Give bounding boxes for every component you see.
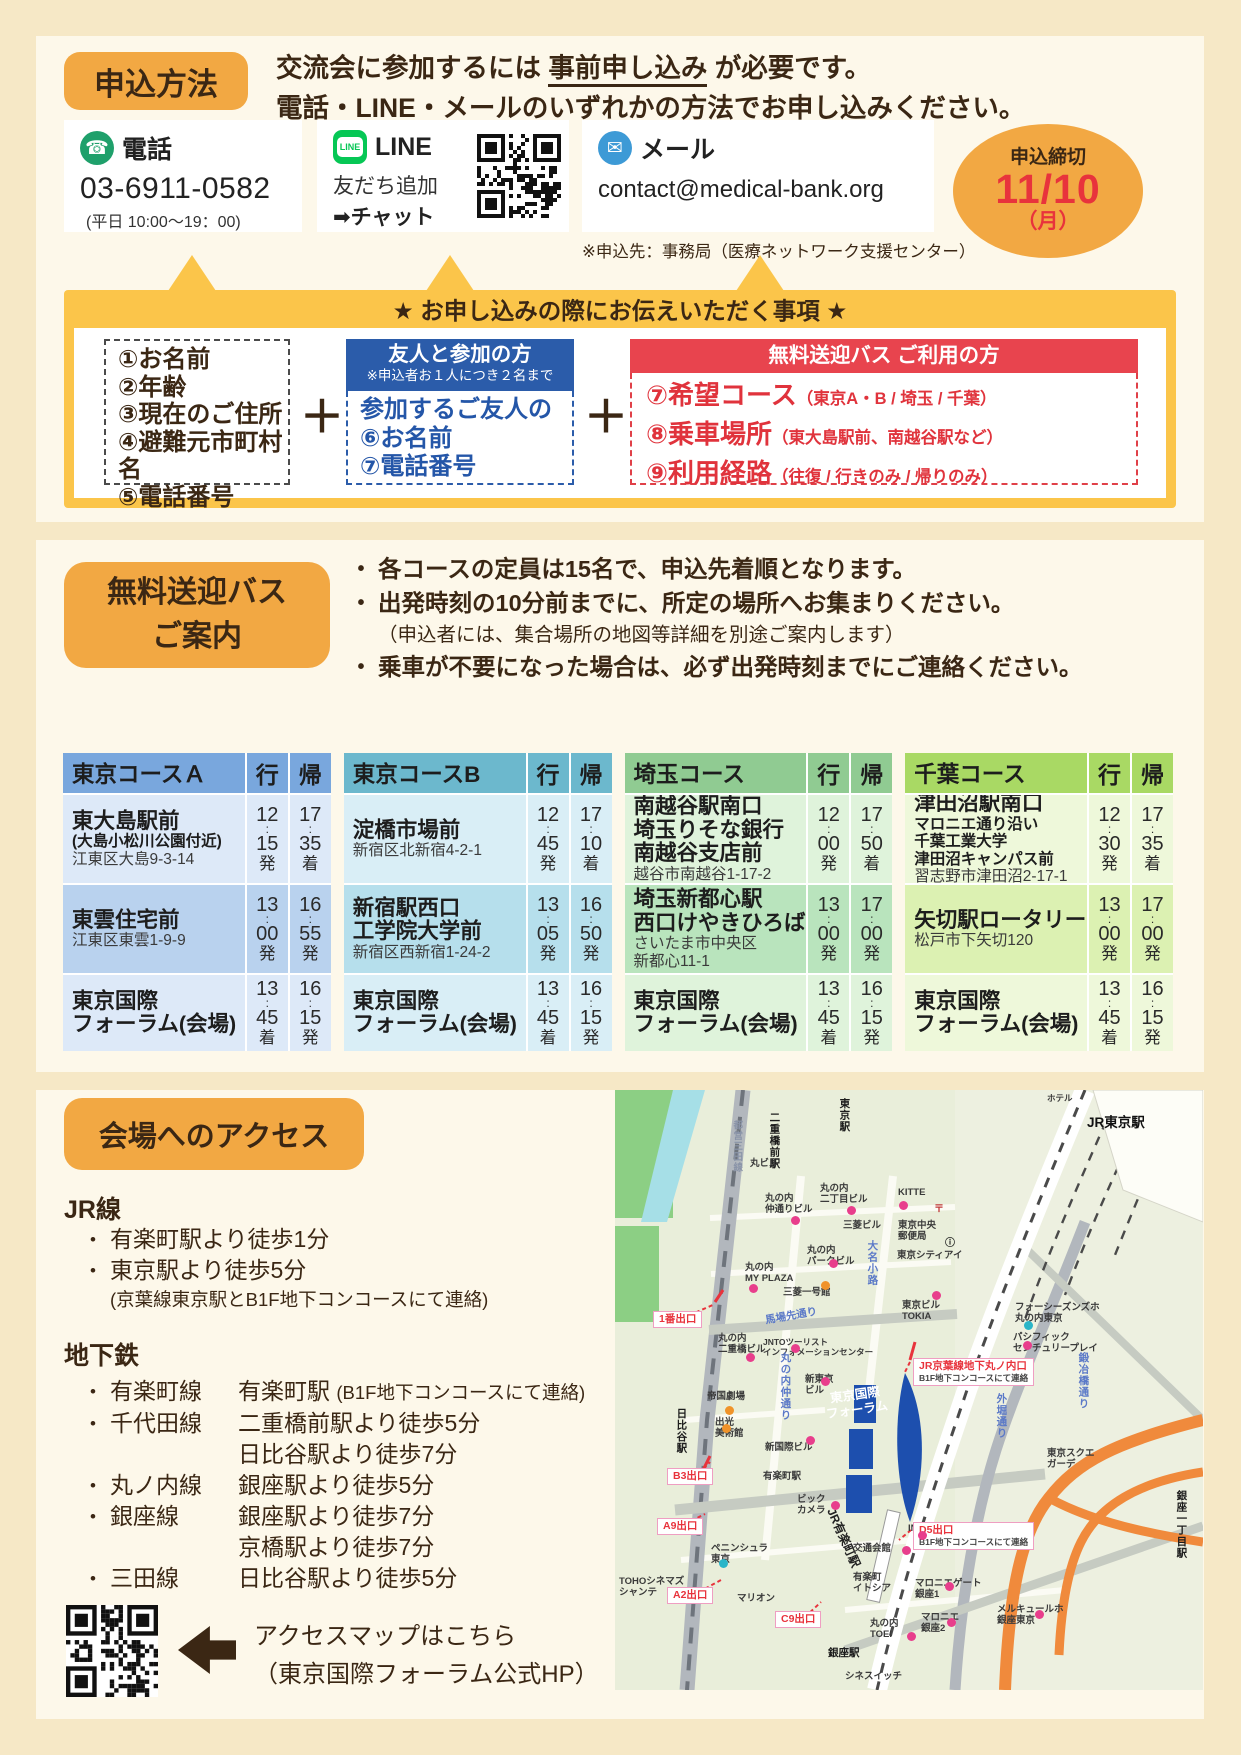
metro-desc-text: 二重橋前駅より徒歩5分 (238, 1410, 480, 1436)
friend-box: 友人と参加の方 ※申込者お１人につき２名まで 参加するご友人の⑥お名前⑦電話番号 (346, 339, 574, 485)
stop-address: さいたま市中央区 (634, 935, 807, 953)
map-label: 新国際ビル (765, 1442, 813, 1453)
metro-desc-line: 銀座駅より徒歩7分 (238, 1501, 434, 1532)
bus-course-table: 東京コースB行帰淀橋市場前新宿区北新宿4-2-112:45発17:10着新宿駅西… (344, 753, 612, 1051)
time-suffix: 発 (1101, 856, 1118, 873)
time-suffix: 着 (1101, 1030, 1118, 1047)
map-label: 〒 (934, 1204, 944, 1216)
map-label: 東京スクエ ガーデ (1047, 1448, 1095, 1470)
time-min: 50 (861, 834, 883, 855)
deadline-day: （月） (1017, 211, 1080, 233)
time-suffix: 発 (1144, 946, 1161, 963)
mail-icon: ✉ (598, 131, 632, 165)
map-label: 丸の内仲通り (779, 1352, 791, 1421)
col-go: 行 (808, 753, 849, 793)
map-dot (947, 1618, 956, 1627)
time-suffix: 発 (540, 856, 557, 873)
time-min: 15 (861, 1008, 883, 1029)
time-min: 15 (580, 1008, 602, 1029)
map-label: ホテル (1047, 1093, 1073, 1103)
stop-cell: 東京国際フォーラム(会場) (625, 975, 807, 1051)
time-go: 12:45発 (528, 795, 569, 883)
time-suffix: 着 (821, 1030, 838, 1047)
stop-name: 埼玉新都心駅 (634, 888, 807, 912)
map-label: ビック カメラ (797, 1494, 826, 1516)
jr-item: •有楽町駅より徒歩1分 (76, 1224, 329, 1255)
bus-note: •各コースの定員は15名で、申込先着順となります。 (344, 552, 1204, 586)
stop-cell: 矢切駅ロータリー松戸市下矢切120 (905, 885, 1087, 973)
time-go: 13:00発 (808, 885, 849, 973)
stop-address: 習志野市津田沼2-17-1 (914, 868, 1087, 883)
course-title: 東京コースB (344, 753, 526, 793)
metro-item: •三田線日比谷駅より徒歩5分 (76, 1563, 585, 1594)
map-label: KITTE (898, 1187, 925, 1198)
stop-note: 千葉工業大学 (914, 833, 1087, 851)
map-label: C9出口 (775, 1611, 821, 1628)
time-suffix: 着 (302, 856, 319, 873)
time-back: 17:00発 (1132, 885, 1173, 973)
map-label: 交通会館 (853, 1543, 891, 1554)
time-back: 16:55発 (290, 885, 331, 973)
map-label: 外堀通り (995, 1393, 1007, 1439)
time-min: 55 (299, 924, 321, 945)
time-suffix: 発 (864, 1030, 881, 1047)
access-map: 都営三田線二重橋前駅東京駅JR東京駅ホテル丸ビル丸の内 仲通りビル丸の内 二丁目… (615, 1090, 1203, 1690)
info-items: ①お名前②年齢③現在のご住所④避難元市町村名⑤電話番号 (104, 339, 290, 485)
mail-label: メール (640, 130, 715, 166)
metro-desc-text: 日比谷駅より徒歩7分 (238, 1441, 457, 1467)
bus-request-main: ⑨利用経路 (646, 458, 772, 488)
plus-sign: ＋ (584, 328, 628, 498)
map-dot (902, 1546, 911, 1555)
map-label: 馬場先通り (764, 1306, 818, 1327)
friend-item: ⑥お名前 (360, 425, 572, 454)
col-back: 帰 (571, 753, 612, 793)
map-label: A9出口 (657, 1518, 703, 1535)
course-title: 埼玉コース (625, 753, 807, 793)
time-min: 35 (299, 834, 321, 855)
metro-desc-line: 日比谷駅より徒歩5分 (238, 1563, 457, 1594)
bus-note-text: （申込者には、集合場所の地図等詳細を別途ご案内します） (378, 620, 905, 650)
jr-list: •有楽町駅より徒歩1分•東京駅より徒歩5分 (76, 1224, 329, 1286)
map-dot (821, 1377, 830, 1386)
stop-cell: 東京国際フォーラム(会場) (344, 975, 526, 1051)
friend-box-header: 友人と参加の方 ※申込者お１人につき２名まで (346, 339, 574, 391)
metro-line-name: 三田線 (110, 1563, 238, 1594)
time-min: 15 (1141, 1008, 1163, 1029)
bus-request-item: ⑦希望コース（東京A・B / 埼玉 / 千葉） (646, 378, 1136, 417)
map-label: 鍛冶橋通り (1077, 1352, 1089, 1410)
metro-line-name: 丸ノ内線 (110, 1470, 238, 1501)
time-back: 16:15発 (571, 975, 612, 1051)
bus-request-items: ⑦希望コース（東京A・B / 埼玉 / 千葉）⑧乗車場所（東大島駅前、南越谷駅な… (630, 373, 1138, 485)
map-label: 日比谷駅 (675, 1408, 687, 1454)
map-dot (918, 1531, 927, 1540)
info-item: ⑤電話番号 (118, 484, 288, 512)
map-dot (907, 1632, 916, 1641)
map-label: 東京シティアイ (897, 1250, 962, 1261)
time-min: 10 (580, 834, 602, 855)
stop-address: 新宿区西新宿1-24-2 (353, 944, 526, 962)
stop-cell: 東雲住宅前江東区東雲1-9-9 (63, 885, 245, 973)
bus-request-title: 無料送迎バス ご利用の方 (630, 339, 1138, 373)
mail-card: ✉メール contact@medical-bank.org (582, 120, 934, 232)
qr-caption-line1: アクセスマップはこちら (254, 1618, 599, 1656)
time-back: 17:35着 (290, 795, 331, 883)
map-dot (1035, 1610, 1044, 1619)
friend-item: 参加するご友人の (360, 396, 572, 425)
metro-desc: 日比谷駅より徒歩5分 (238, 1563, 457, 1594)
map-dot (1024, 1321, 1033, 1330)
map-label: 丸の内 二丁目ビル (820, 1183, 868, 1205)
time-suffix: 着 (583, 856, 600, 873)
time-suffix: 発 (302, 1030, 319, 1047)
map-label: JR東京駅 (1087, 1115, 1145, 1131)
map-dot (945, 1582, 954, 1591)
time-back: 16:15発 (851, 975, 892, 1051)
stop-note: (大島小松川公園付近) (72, 833, 245, 851)
time-min: 45 (537, 1008, 559, 1029)
time-back: 17:50着 (851, 795, 892, 883)
map-dot (806, 1436, 815, 1445)
map-label: 銀座一丁目駅 (1175, 1490, 1187, 1559)
map-dot (829, 1259, 838, 1268)
time-min: 00 (1141, 924, 1163, 945)
metro-line-name: 有楽町線 (110, 1376, 238, 1407)
time-suffix: 発 (583, 946, 600, 963)
map-label: 丸の内 TOEI (870, 1618, 899, 1640)
map-label: D5出口B1F地下コンコースにて連絡 (913, 1522, 1034, 1550)
bullet: • (344, 586, 378, 620)
metro-desc-line: 有楽町駅 (B1F地下コンコースにて連絡) (238, 1376, 585, 1408)
stop-cell: 淀橋市場前新宿区北新宿4-2-1 (344, 795, 526, 883)
bus-tables: 東京コースＡ行帰東大島駅前(大島小松川公園付近)江東区大島9-3-1412:15… (63, 753, 1173, 1051)
shuttle-badge-line2: ご案内 (152, 615, 242, 659)
bus-note-text: 乗車が不要になった場合は、必ず出発時刻までにご連絡ください。 (378, 650, 1083, 684)
stop-address: 松戸市下矢切120 (914, 932, 1087, 950)
bullet: • (76, 1224, 110, 1255)
col-go: 行 (247, 753, 288, 793)
time-back: 17:10着 (571, 795, 612, 883)
map-label-sub: B1F地下コンコースにて連絡 (919, 1537, 1028, 1548)
info-item: ③現在のご住所 (118, 401, 288, 429)
stop-name: 東京国際 (72, 990, 245, 1014)
stop-address: 江東区大島9-3-14 (72, 851, 245, 869)
map-dot (821, 1281, 830, 1290)
time-min: 45 (256, 1008, 278, 1029)
bus-request-sub: （往復 / 行きのみ / 帰りのみ） (772, 468, 998, 486)
stop-cell: 新宿駅西口工学院大学前新宿区西新宿1-24-2 (344, 885, 526, 973)
col-back: 帰 (290, 753, 331, 793)
map-label: B3出口 (667, 1468, 713, 1485)
stop-name: 淀橋市場前 (353, 819, 526, 843)
time-back: 16:15発 (1132, 975, 1173, 1051)
metro-heading: 地下鉄 (64, 1336, 139, 1372)
map-label: マリオン (737, 1593, 775, 1604)
time-back: 16:15発 (290, 975, 331, 1051)
stop-name: 新宿駅西口 (353, 897, 526, 921)
metro-desc-line: 日比谷駅より徒歩7分 (238, 1439, 480, 1470)
time-min: 00 (818, 834, 840, 855)
stop-cell: 東京国際フォーラム(会場) (63, 975, 245, 1051)
metro-desc-text: 銀座駅より徒歩5分 (238, 1472, 434, 1498)
bullet: • (76, 1470, 110, 1501)
line-icon: LINE (333, 130, 367, 164)
col-go: 行 (528, 753, 569, 793)
bullet: • (76, 1255, 110, 1286)
friend-item: ⑦電話番号 (360, 453, 572, 482)
bus-note: •出発時刻の10分前までに、所定の場所へお集まりください。 (344, 586, 1204, 620)
time-min: 35 (1141, 834, 1163, 855)
map-label: JR京葉線地下丸ノ内口B1F地下コンコースにて連絡 (913, 1358, 1034, 1386)
time-go: 12:30発 (1089, 795, 1130, 883)
pre-apply-underline: 事前申し込み (548, 53, 707, 87)
time-suffix: 発 (540, 946, 557, 963)
time-back: 17:35着 (1132, 795, 1173, 883)
line-label: LINE (375, 133, 432, 162)
stop-name: 埼玉りそな銀行 (634, 819, 807, 843)
qr-caption-line2: （東京国際フォーラム公式HP） (254, 1656, 599, 1694)
time-suffix: 着 (1144, 856, 1161, 873)
bullet: • (344, 552, 378, 586)
time-min: 00 (861, 924, 883, 945)
connector-triangle (168, 255, 216, 291)
map-dot (791, 1344, 800, 1353)
time-suffix: 発 (1144, 1030, 1161, 1047)
stop-name: 南越谷駅南口 (634, 795, 807, 819)
bullet: • (76, 1563, 110, 1594)
connector-triangle (426, 255, 474, 291)
stop-name: 矢切駅ロータリー (914, 909, 1087, 933)
stop-name: 東京国際 (353, 990, 526, 1014)
map-dot (749, 1284, 758, 1293)
time-suffix: 発 (864, 946, 881, 963)
time-suffix: 発 (259, 946, 276, 963)
time-min: 00 (1098, 924, 1120, 945)
stop-name: 東雲住宅前 (72, 909, 245, 933)
stop-name: 東京国際 (914, 990, 1087, 1014)
apply-section: 申込方法 交流会に参加するには 事前申し込み が必要です。 電話・LINE・メー… (36, 36, 1204, 522)
time-go: 13:45着 (1089, 975, 1130, 1051)
time-min: 45 (1098, 1008, 1120, 1029)
shuttle-badge-line1: 無料送迎バス (107, 571, 287, 615)
metro-desc-line: 銀座駅より徒歩5分 (238, 1470, 434, 1501)
time-go: 13:45着 (528, 975, 569, 1051)
stop-address: 越谷市南越谷1-17-2 (634, 866, 807, 884)
metro-desc-text: 有楽町駅 (238, 1378, 336, 1404)
stop-note: マロニエ通り沿い (914, 816, 1087, 834)
apply-headline: 交流会に参加するには 事前申し込み が必要です。 電話・LINE・メールのいずれ… (276, 48, 1025, 128)
stop-name: フォーラム(会場) (72, 1013, 245, 1037)
map-overlay: 都営三田線二重橋前駅東京駅JR東京駅ホテル丸ビル丸の内 仲通りビル丸の内 二丁目… (615, 1090, 1203, 1690)
col-go: 行 (1089, 753, 1130, 793)
map-label: 1番出口 (653, 1311, 702, 1328)
phone-label: 電話 (122, 130, 172, 166)
jr-item-text: 東京駅より徒歩5分 (110, 1255, 306, 1286)
time-min: 00 (818, 924, 840, 945)
bus-request-sub: （東京A・B / 埼玉 / 千葉） (797, 390, 997, 408)
time-go: 13:05発 (528, 885, 569, 973)
bus-course-table: 千葉コース行帰津田沼駅南口マロニエ通り沿い千葉工業大学津田沼キャンパス前習志野市… (905, 753, 1173, 1051)
time-min: 30 (1098, 834, 1120, 855)
map-label-sub: B1F地下コンコースにて連絡 (919, 1373, 1028, 1384)
map-dot (831, 1501, 840, 1510)
bus-request-item: ⑨利用経路（往復 / 行きのみ / 帰りのみ） (646, 456, 1136, 495)
jr-note: (京葉線東京駅とB1F地下コンコースにて連絡) (110, 1286, 488, 1312)
time-go: 13:45着 (247, 975, 288, 1051)
stop-address: 新都心11-1 (634, 953, 807, 971)
deadline-label: 申込締切 (1010, 148, 1086, 168)
map-dot (1023, 1341, 1032, 1350)
stop-cell: 東大島駅前(大島小松川公園付近)江東区大島9-3-14 (63, 795, 245, 883)
plus-sign: ＋ (300, 328, 344, 498)
stop-address: 江東区東雲1-9-9 (72, 932, 245, 950)
metro-desc-text: 銀座駅より徒歩7分 (238, 1503, 434, 1529)
map-dot (719, 1559, 728, 1568)
metro-desc-line: 京橋駅より徒歩7分 (238, 1532, 434, 1563)
map-dot (899, 1201, 908, 1210)
required-info-banner: ★ お申し込みの際にお伝えいただく事項 ★ (64, 290, 1176, 328)
stop-cell: 津田沼駅南口マロニエ通り沿い千葉工業大学津田沼キャンパス前習志野市津田沼2-17… (905, 795, 1087, 883)
metro-desc: 有楽町駅 (B1F地下コンコースにて連絡) (238, 1376, 585, 1408)
stop-name: フォーラム(会場) (634, 1013, 807, 1037)
map-label: 丸の内 仲通りビル (765, 1193, 813, 1215)
time-suffix: 着 (864, 856, 881, 873)
time-suffix: 発 (1101, 946, 1118, 963)
time-min: 45 (537, 834, 559, 855)
deadline-date: 11/10 (995, 168, 1100, 211)
friend-box-title: 友人と参加の方 (346, 342, 574, 368)
time-go: 12:15発 (247, 795, 288, 883)
bullet: • (76, 1408, 110, 1439)
info-item: ②年齢 (118, 374, 288, 402)
phone-card: ☎電話 03-6911-0582 (平日 10:00〜19：00) (64, 120, 302, 232)
qr-caption: アクセスマップはこちら （東京国際フォーラム公式HP） (254, 1618, 599, 1694)
metro-list: •有楽町線有楽町駅 (B1F地下コンコースにて連絡)•千代田線二重橋前駅より徒歩… (76, 1376, 585, 1594)
stop-name: 工学院大学前 (353, 920, 526, 944)
map-dot (932, 1291, 941, 1300)
bullet: • (76, 1376, 110, 1407)
metro-item: •丸ノ内線銀座駅より徒歩5分 (76, 1470, 585, 1501)
bus-course-table: 埼玉コース行帰南越谷駅南口埼玉りそな銀行南越谷支店前越谷市南越谷1-17-212… (625, 753, 893, 1051)
time-back: 16:50発 (571, 885, 612, 973)
map-label: 大名小路 (866, 1240, 878, 1286)
stop-note: 津田沼キャンパス前 (914, 851, 1087, 869)
map-label: ⓘ (945, 1238, 955, 1250)
bus-note: •乗車が不要になった場合は、必ず出発時刻までにご連絡ください。 (344, 650, 1204, 684)
access-badge: 会場へのアクセス (64, 1098, 364, 1170)
map-label: 東京駅 (838, 1098, 850, 1133)
course-title: 東京コースＡ (63, 753, 245, 793)
map-label: TOHOシネマズ シャンテ (619, 1576, 684, 1598)
line-card: LINELINE 友だち追加 ➡チャット (317, 120, 569, 232)
bus-note-text: 出発時刻の10分前までに、所定の場所へお集まりください。 (378, 586, 1014, 620)
shuttle-section: 無料送迎バス ご案内 •各コースの定員は15名で、申込先着順となります。•出発時… (36, 540, 1204, 1072)
map-label: メルキュールホ 銀座東京 (997, 1604, 1064, 1626)
required-info-box: ★ お申し込みの際にお伝えいただく事項 ★ ①お名前②年齢③現在のご住所④避難元… (64, 290, 1176, 508)
stop-cell: 埼玉新都心駅西口けやきひろばさいたま市中央区新都心11-1 (625, 885, 807, 973)
time-min: 45 (818, 1008, 840, 1029)
left-arrow-icon (178, 1626, 236, 1674)
friend-box-subtitle: ※申込者お１人につき２名まで (346, 368, 574, 384)
map-label: JR有楽町駅 (824, 1506, 863, 1570)
map-label: 丸の内 二重橋ビル (718, 1333, 766, 1355)
bus-course-table: 東京コースＡ行帰東大島駅前(大島小松川公園付近)江東区大島9-3-1412:15… (63, 753, 331, 1051)
time-min: 00 (256, 924, 278, 945)
map-label: シネスイッチ (845, 1671, 902, 1682)
info-item: ④避難元市町村名 (118, 429, 288, 484)
map-label: 都営三田線 (731, 1120, 742, 1173)
time-min: 15 (299, 1008, 321, 1029)
time-suffix: 着 (540, 1030, 557, 1047)
metro-item: •銀座線銀座駅より徒歩7分京橋駅より徒歩7分 (76, 1501, 585, 1563)
map-label: 銀座駅 (828, 1647, 860, 1659)
map-label: 丸の内 MY PLAZA (745, 1262, 793, 1284)
metro-desc: 銀座駅より徒歩5分 (238, 1470, 434, 1501)
stop-name: フォーラム(会場) (353, 1013, 526, 1037)
map-label: 帝国劇場 (707, 1391, 745, 1402)
phone-number: 03-6911-0582 (64, 166, 302, 206)
access-section: 会場へのアクセス JR線 •有楽町駅より徒歩1分•東京駅より徒歩5分 (京葉線東… (36, 1090, 1204, 1719)
time-suffix: 発 (259, 856, 276, 873)
access-qr-code (66, 1605, 158, 1697)
friend-items: 参加するご友人の⑥お名前⑦電話番号 (346, 391, 574, 485)
time-go: 13:45着 (808, 975, 849, 1051)
bus-note: （申込者には、集合場所の地図等詳細を別途ご案内します） (344, 620, 1204, 650)
metro-desc: 二重橋前駅より徒歩5分日比谷駅より徒歩7分 (238, 1408, 480, 1470)
bus-notes: •各コースの定員は15名で、申込先着順となります。•出発時刻の10分前までに、所… (344, 552, 1204, 684)
time-min: 15 (256, 834, 278, 855)
stop-name: フォーラム(会場) (914, 1013, 1087, 1037)
metro-item: •有楽町線有楽町駅 (B1F地下コンコースにて連絡) (76, 1376, 585, 1408)
map-dot (725, 1406, 734, 1415)
metro-line-name: 千代田線 (110, 1408, 238, 1439)
map-dot (847, 1206, 856, 1215)
metro-desc-text: 京橋駅より徒歩7分 (238, 1534, 434, 1560)
time-suffix: 発 (821, 946, 838, 963)
stop-name: 東京国際 (634, 990, 807, 1014)
mail-address: contact@medical-bank.org (582, 166, 934, 204)
required-info-body: ①お名前②年齢③現在のご住所④避難元市町村名⑤電話番号 ＋ 友人と参加の方 ※申… (74, 328, 1166, 498)
line-qr-code (477, 134, 561, 218)
stop-name: 東大島駅前 (72, 810, 245, 834)
bullet: • (344, 650, 378, 684)
map-label: 丸ビル (750, 1158, 779, 1169)
bus-note-text: 各コースの定員は15名で、申込先着順となります。 (378, 552, 916, 586)
metro-line-name: 銀座線 (110, 1501, 238, 1532)
connector-triangle (736, 255, 784, 291)
time-suffix: 発 (821, 856, 838, 873)
apply-badge: 申込方法 (64, 52, 248, 110)
metro-desc-line: 二重橋前駅より徒歩5分 (238, 1408, 480, 1439)
time-suffix: 着 (259, 1030, 276, 1047)
jr-item: •東京駅より徒歩5分 (76, 1255, 329, 1286)
map-dot (746, 1353, 755, 1362)
metro-item: •千代田線二重橋前駅より徒歩5分日比谷駅より徒歩7分 (76, 1408, 585, 1470)
bus-request-item: ⑧乗車場所（東大島駅前、南越谷駅など） (646, 417, 1136, 456)
stop-cell: 南越谷駅南口埼玉りそな銀行南越谷支店前越谷市南越谷1-17-2 (625, 795, 807, 883)
map-label: 東京ビル TOKIA (902, 1300, 940, 1322)
map-label: 東京中央 郵便局 (898, 1220, 936, 1242)
stop-address: 新宿区北新宿4-2-1 (353, 842, 526, 860)
shuttle-badge: 無料送迎バス ご案内 (64, 562, 330, 668)
stop-cell: 東京国際フォーラム(会場) (905, 975, 1087, 1051)
stop-name: 西口けやきひろば (634, 912, 807, 936)
time-min: 50 (580, 924, 602, 945)
time-back: 17:00発 (851, 885, 892, 973)
time-go: 13:00発 (247, 885, 288, 973)
bus-request-sub: （東大島駅前、南越谷駅など） (772, 429, 1003, 447)
